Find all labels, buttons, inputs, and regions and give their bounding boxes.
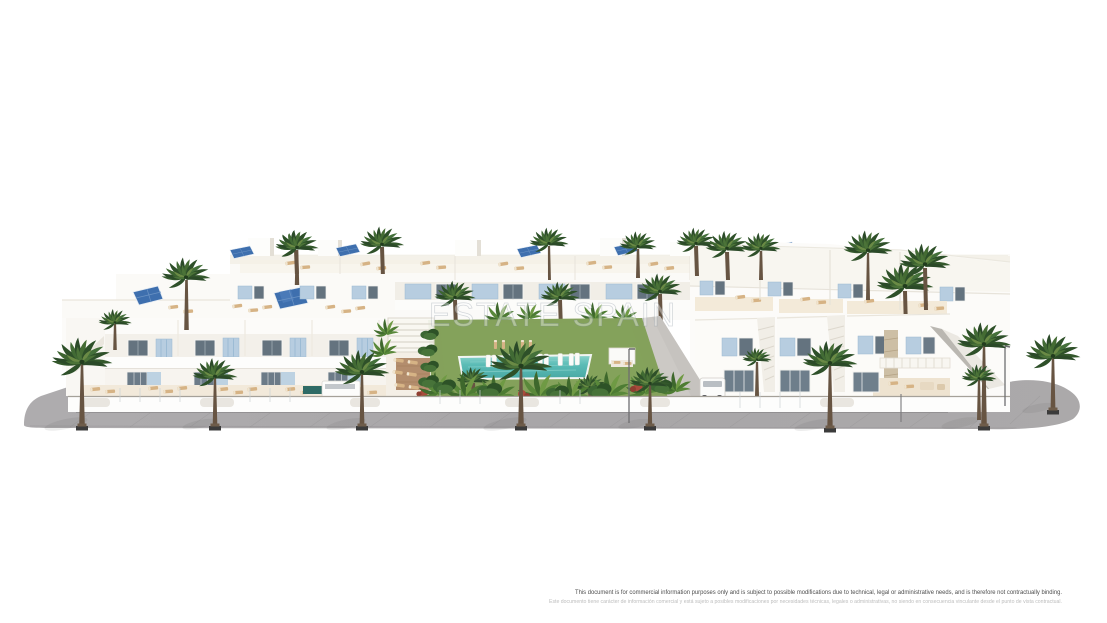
- svg-text:ESTATE SPAIN: ESTATE SPAIN: [429, 296, 677, 333]
- svg-text:Este documento tiene carácter: Este documento tiene carácter de informa…: [549, 599, 1062, 605]
- svg-text:This document is for commercia: This document is for commercial informat…: [575, 589, 1062, 596]
